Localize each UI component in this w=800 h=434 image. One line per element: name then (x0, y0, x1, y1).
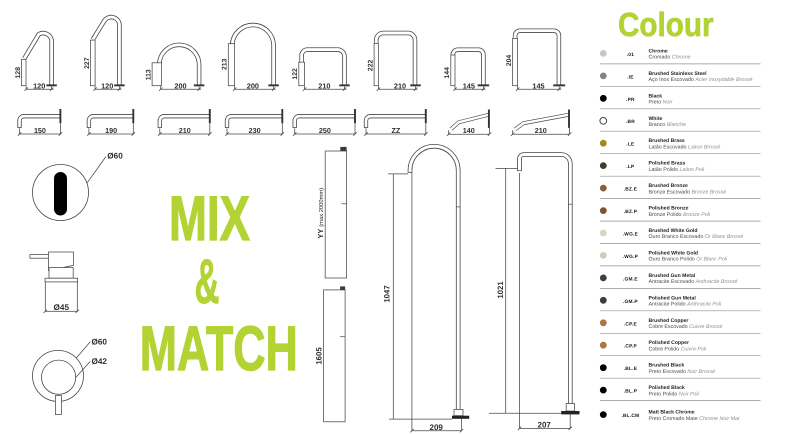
svg-text:207: 207 (538, 421, 552, 430)
svg-text:200: 200 (247, 81, 259, 90)
svg-text:.BL.CM: .BL.CM (621, 413, 639, 419)
svg-text:.BL.P: .BL.P (624, 389, 638, 395)
svg-text:.BL.E: .BL.E (624, 366, 638, 372)
svg-text:Preto Escovado Noir Brossé: Preto Escovado Noir Brossé (649, 369, 716, 375)
svg-text:Aço Inox Escovado Acier Inoxyd: Aço Inox Escovado Acier Inoxydable Bross… (649, 77, 753, 83)
svg-text:Ouro Branco Escovado Or Blanc: Ouro Branco Escovado Or Blanc Brossé (649, 234, 744, 240)
svg-text:Preto Noir: Preto Noir (649, 100, 673, 106)
svg-text:210: 210 (535, 126, 547, 135)
svg-text:Polished White Gold: Polished White Gold (649, 250, 699, 256)
svg-text:128: 128 (15, 67, 22, 79)
svg-text:227: 227 (84, 57, 91, 69)
svg-text:Brushed Gun Metal: Brushed Gun Metal (649, 273, 696, 279)
svg-text:213: 213 (222, 58, 229, 70)
svg-text:Ø45: Ø45 (54, 303, 70, 312)
svg-text:Brushed White Gold: Brushed White Gold (649, 228, 698, 234)
svg-text:Polished Gun Metal: Polished Gun Metal (649, 295, 697, 301)
svg-text:.LE: .LE (626, 142, 635, 148)
svg-text:Matt Black Chrome: Matt Black Chrome (649, 410, 695, 416)
svg-text:Latão Polido Laiton Poli: Latão Polido Laiton Poli (649, 167, 705, 173)
svg-text:.BZ.P: .BZ.P (624, 209, 638, 215)
svg-text:Cobre Escovado Cuivre Brossé: Cobre Escovado Cuivre Brossé (649, 324, 723, 330)
svg-text:&: & (195, 247, 220, 317)
svg-text:.IE: .IE (627, 74, 634, 80)
svg-text:210: 210 (179, 126, 191, 135)
svg-text:Polished Brass: Polished Brass (649, 161, 686, 167)
svg-text:113: 113 (146, 69, 153, 80)
svg-text:Cromado Chrome: Cromado Chrome (649, 55, 691, 61)
svg-text:.PR: .PR (626, 97, 635, 103)
svg-text:Bronze Polido Bronze Poli: Bronze Polido Bronze Poli (649, 212, 711, 218)
svg-text:White: White (649, 116, 663, 122)
svg-text:1021: 1021 (496, 281, 505, 299)
svg-text:Polished Copper: Polished Copper (649, 340, 689, 346)
svg-text:1605: 1605 (315, 347, 324, 365)
svg-text:Latão Escovado Laiton Brossé: Latão Escovado Laiton Brossé (649, 144, 721, 150)
svg-text:209: 209 (430, 423, 444, 432)
svg-text:.CP.P: .CP.P (624, 344, 638, 350)
svg-text:.01: .01 (627, 52, 635, 58)
svg-text:Antracite Escovado Anthracite: Antracite Escovado Anthracite Brossé (649, 279, 738, 285)
svg-text:204: 204 (506, 55, 513, 67)
svg-text:190: 190 (105, 126, 117, 135)
svg-text:145: 145 (463, 81, 475, 90)
svg-text:230: 230 (249, 126, 261, 135)
svg-text:Brushed Brass: Brushed Brass (649, 138, 685, 144)
svg-text:Brushed Stainless Steel: Brushed Stainless Steel (649, 71, 708, 77)
svg-text:200: 200 (174, 81, 186, 90)
svg-text:Ø60: Ø60 (107, 151, 123, 160)
svg-text:Preto Polido Noir Poli: Preto Polido Noir Poli (649, 391, 700, 397)
svg-text:Chrome: Chrome (649, 48, 668, 54)
svg-text:ZZ: ZZ (392, 126, 401, 135)
svg-text:MATCH: MATCH (140, 314, 298, 384)
svg-text:.BR: .BR (626, 119, 635, 125)
svg-text:Bronze Escovado Bronze Brossé: Bronze Escovado Bronze Brossé (649, 189, 727, 195)
svg-text:Brushed Black: Brushed Black (649, 363, 685, 369)
svg-text:145: 145 (532, 81, 544, 90)
svg-text:MIX: MIX (169, 184, 250, 254)
svg-text:122: 122 (292, 68, 299, 80)
svg-text:222: 222 (368, 60, 375, 72)
svg-text:Preto Cromado Mate Chrome Noir: Preto Cromado Mate Chrome Noir Mat (649, 416, 740, 422)
svg-text:Ø60: Ø60 (92, 337, 108, 346)
svg-text:140: 140 (463, 126, 475, 135)
svg-text:Ouro Branco Polido Or Blanc Po: Ouro Branco Polido Or Blanc Poli (649, 257, 728, 263)
svg-text:.GM.E: .GM.E (623, 276, 638, 282)
svg-text:Black: Black (649, 93, 663, 99)
svg-text:150: 150 (34, 126, 46, 135)
svg-text:210: 210 (394, 81, 406, 90)
svg-text:250: 250 (319, 126, 331, 135)
svg-text:.WG.E: .WG.E (623, 232, 639, 238)
svg-text:.BZ.E: .BZ.E (624, 187, 638, 193)
svg-text:120: 120 (101, 81, 113, 90)
svg-text:Brushed Copper: Brushed Copper (649, 318, 689, 324)
svg-text:144: 144 (444, 67, 451, 79)
svg-text:Colour: Colour (618, 7, 714, 44)
svg-text:Branco Blanche: Branco Blanche (649, 122, 686, 128)
svg-text:Polished Bronze: Polished Bronze (649, 206, 689, 212)
svg-text:1047: 1047 (383, 285, 392, 302)
svg-text:Brushed Bronze: Brushed Bronze (649, 183, 689, 189)
svg-text:.WG.P: .WG.P (623, 254, 639, 260)
svg-text:.GM.P: .GM.P (623, 299, 638, 305)
svg-text:.LP: .LP (626, 164, 635, 170)
svg-text:Cobre Polido Cuivre Poli: Cobre Polido Cuivre Poli (649, 346, 708, 352)
svg-text:.CP.E: .CP.E (624, 321, 638, 327)
svg-text:Antracite Polido Anthracite Po: Antracite Polido Anthracite Poli (649, 302, 723, 308)
svg-text:Polished Black: Polished Black (649, 385, 685, 391)
svg-text:120: 120 (33, 81, 45, 90)
svg-text:Ø42: Ø42 (92, 357, 108, 366)
svg-text:210: 210 (318, 81, 330, 90)
